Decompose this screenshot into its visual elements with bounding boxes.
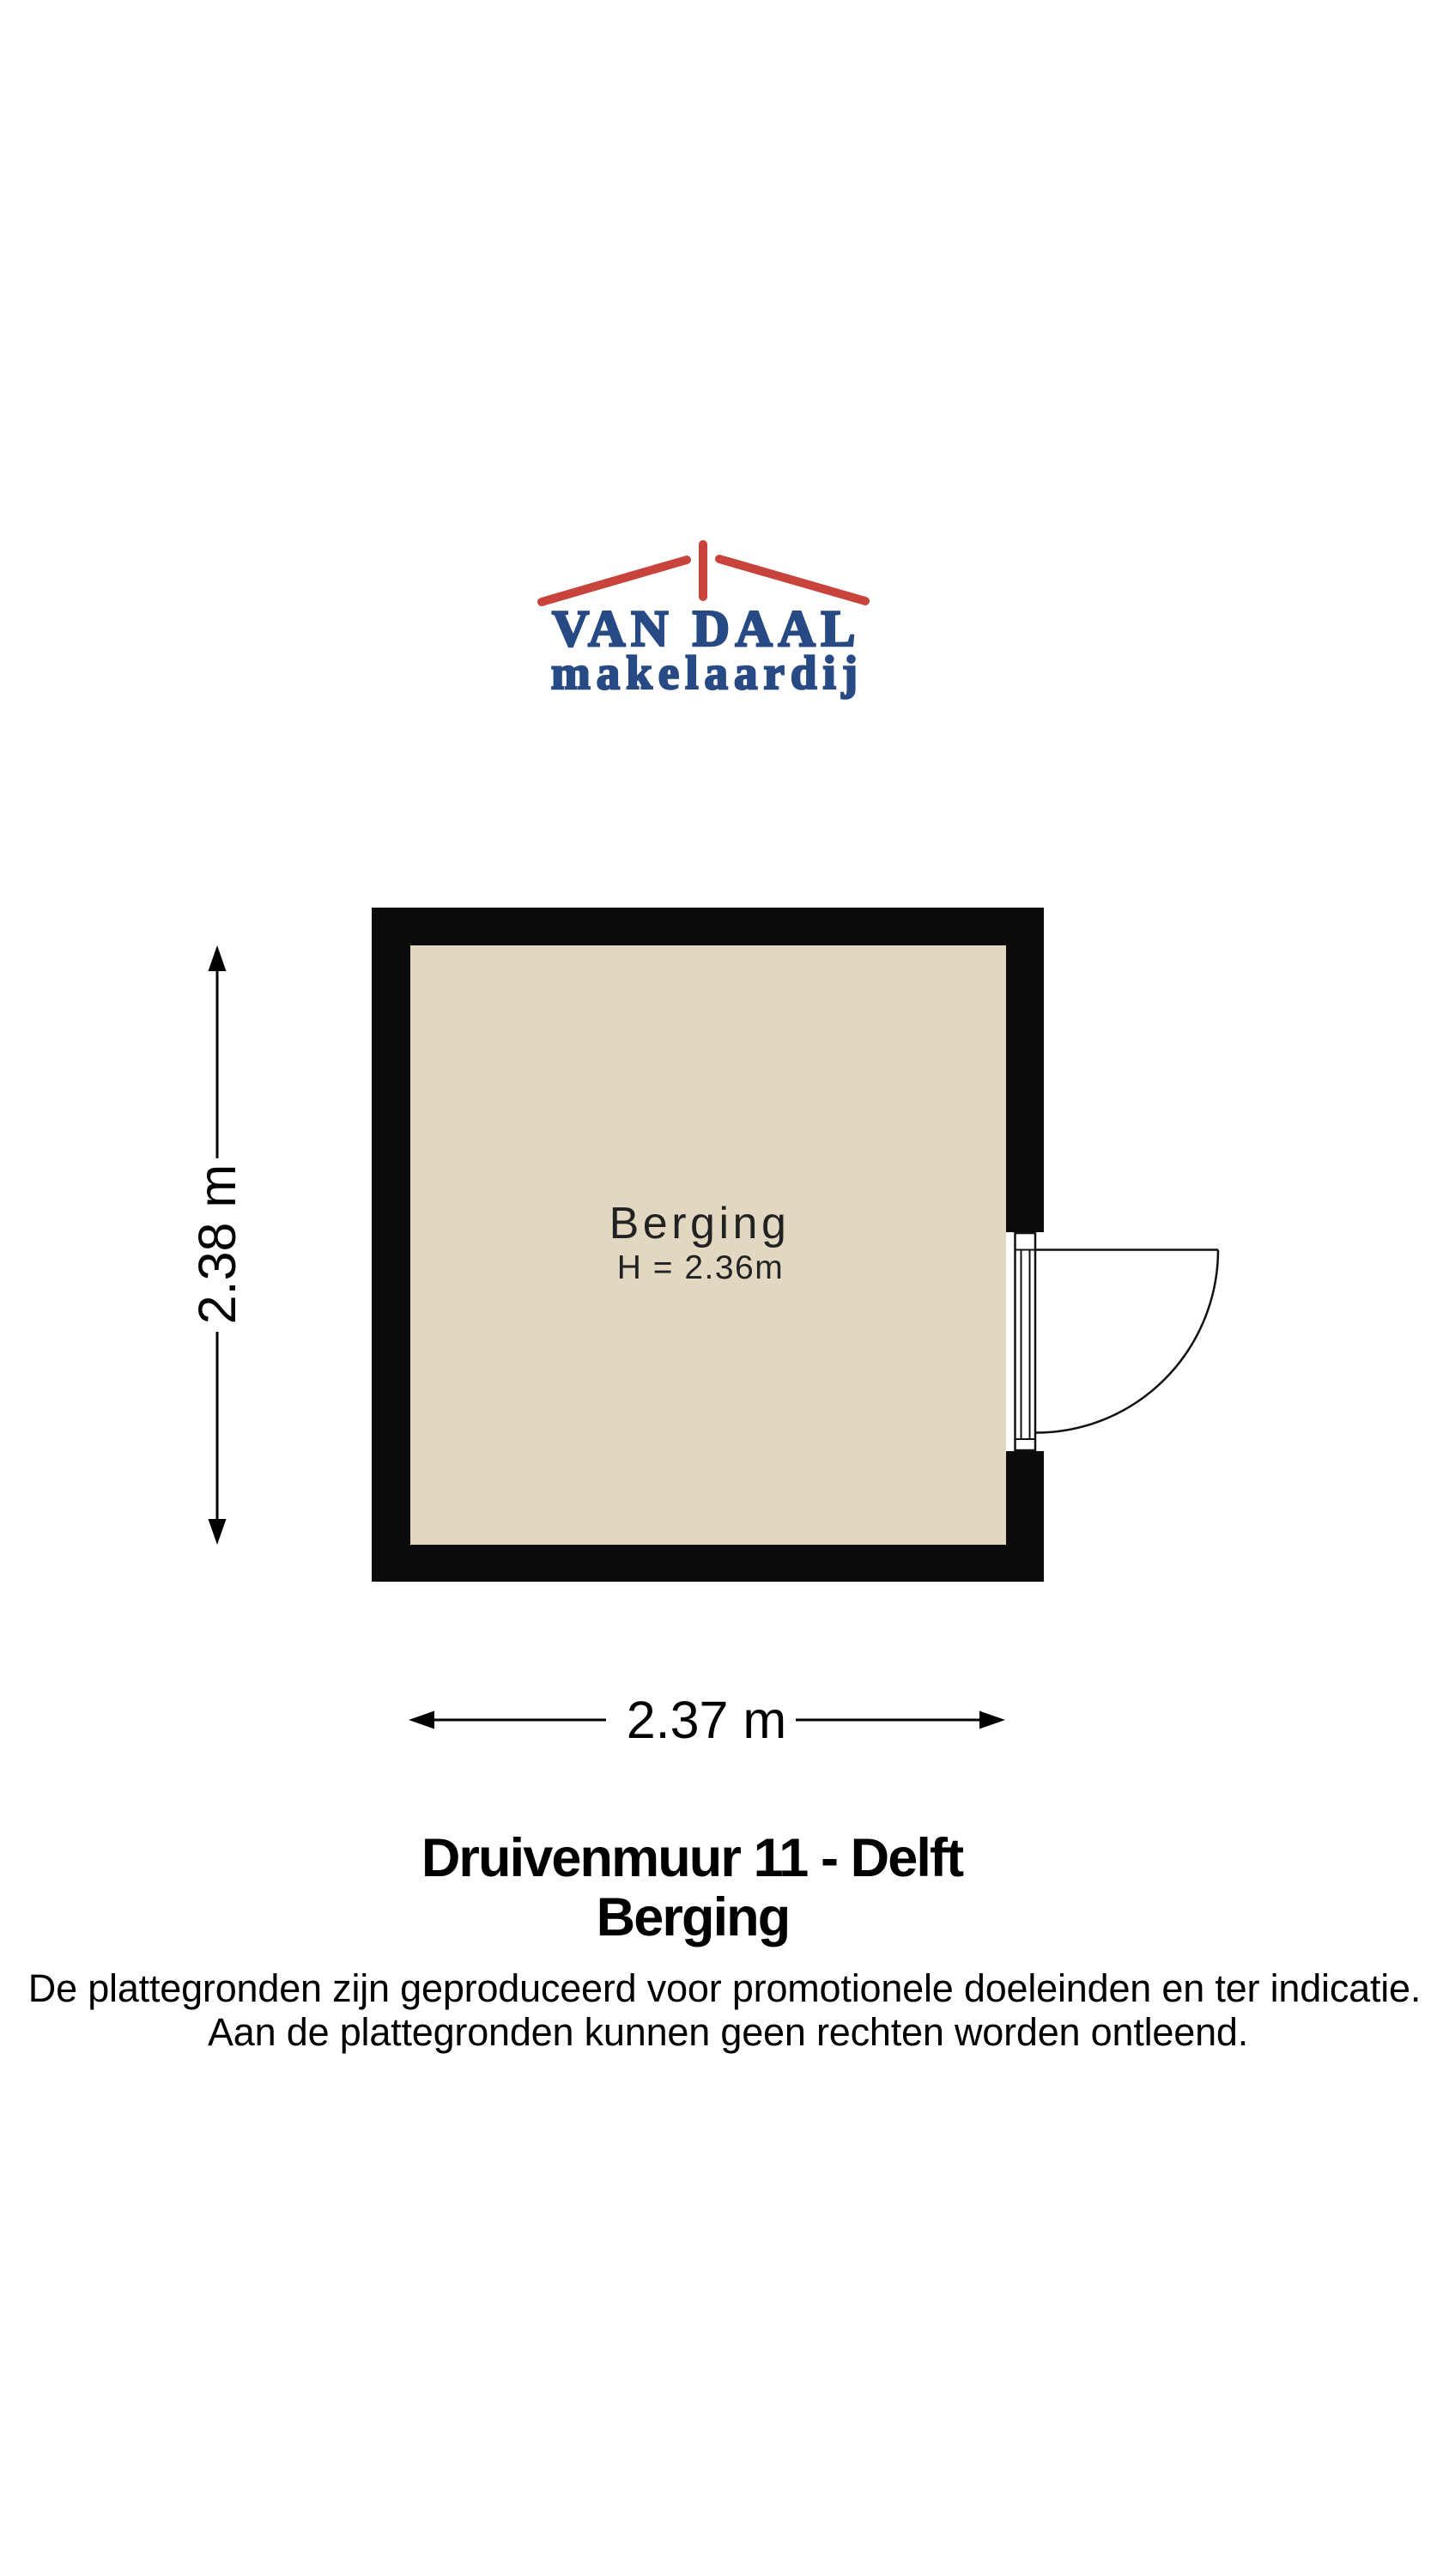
svg-text:Berging: Berging	[609, 1199, 791, 1249]
svg-text:2.37 m: 2.37 m	[627, 1691, 787, 1749]
svg-text:2.38 m: 2.38 m	[188, 1164, 246, 1325]
svg-text:De plattegronden zijn geproduc: De plattegronden zijn geproduceerd voor …	[28, 1966, 1421, 2010]
svg-text:H = 2.36m: H = 2.36m	[617, 1249, 785, 1286]
svg-text:Aan de plattegronden kunnen ge: Aan de plattegronden kunnen geen rechten…	[208, 2010, 1248, 2054]
svg-text:Berging: Berging	[597, 1887, 790, 1947]
svg-text:Druivenmuur 11 - Delft: Druivenmuur 11 - Delft	[421, 1828, 964, 1888]
svg-text:makelaardij: makelaardij	[551, 647, 864, 699]
